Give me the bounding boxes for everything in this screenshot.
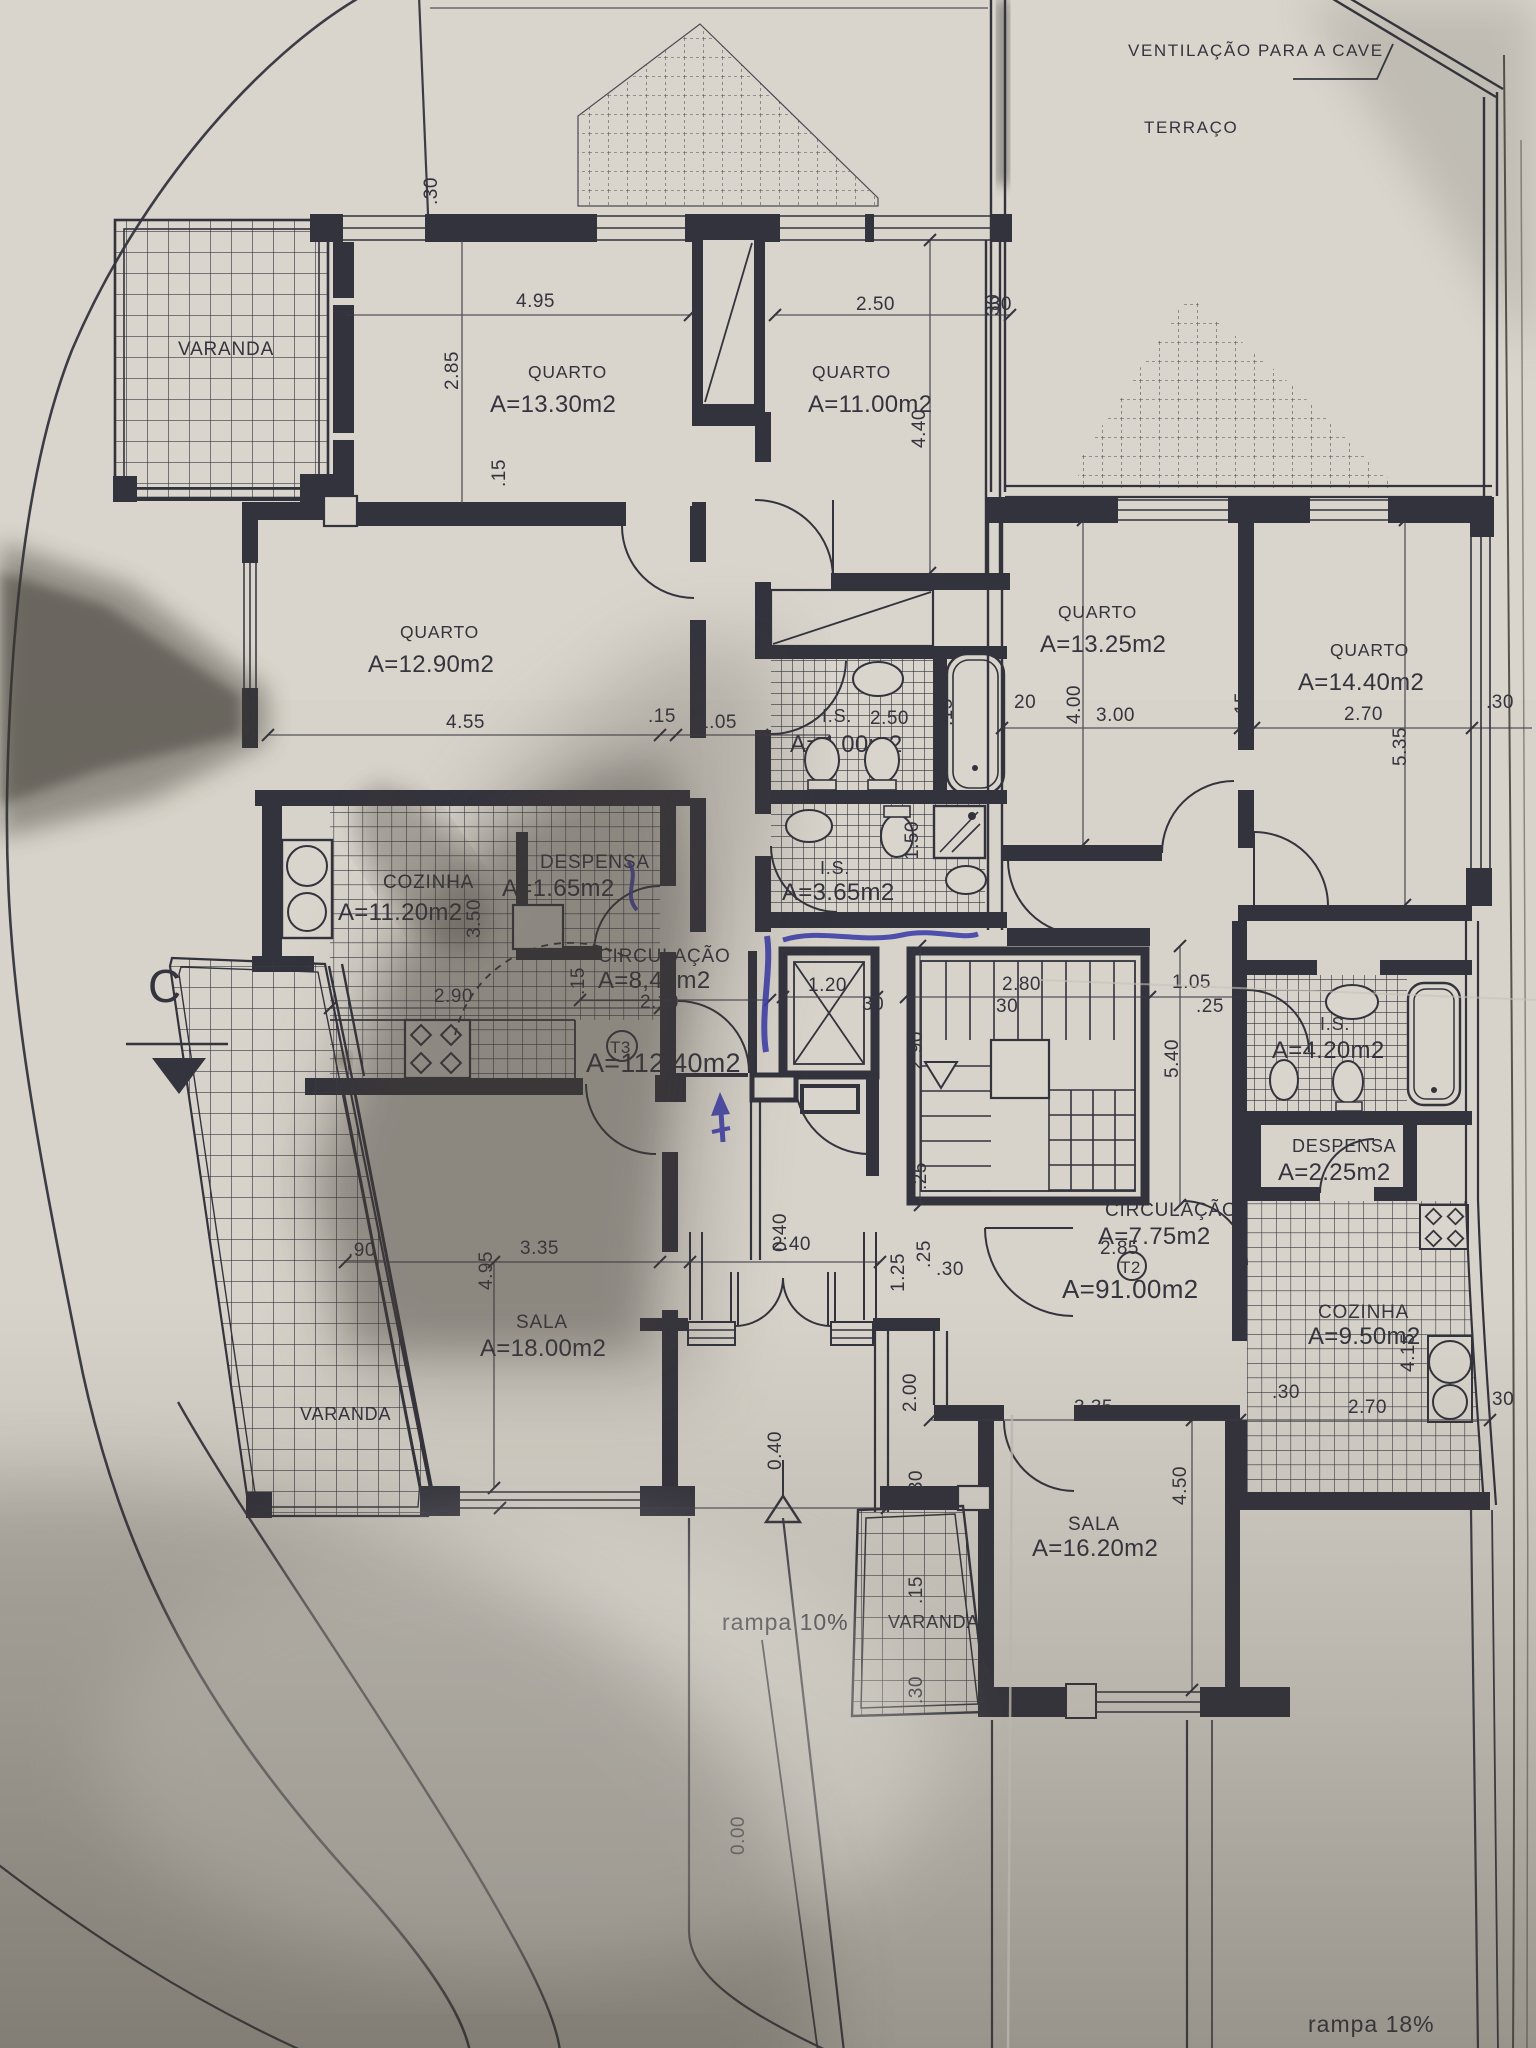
svg-text:1.25: 1.25 [888, 1253, 909, 1292]
svg-text:1.20: 1.20 [808, 975, 847, 996]
svg-text:A=12.90m2: A=12.90m2 [368, 651, 494, 678]
svg-text:5.35: 5.35 [1390, 727, 1411, 766]
svg-text:QUARTO: QUARTO [1330, 640, 1409, 660]
svg-text:2.50: 2.50 [870, 708, 909, 729]
svg-text:C: C [148, 960, 183, 1012]
svg-text:5.40: 5.40 [1162, 1039, 1183, 1078]
svg-text:2.80: 2.80 [1002, 974, 1041, 995]
svg-text:2.85: 2.85 [1100, 1238, 1139, 1259]
svg-text:30: 30 [983, 294, 1004, 316]
svg-text:QUARTO: QUARTO [812, 362, 891, 382]
svg-text:1.05: 1.05 [1172, 972, 1211, 993]
svg-text:2.85: 2.85 [442, 351, 463, 390]
svg-text:A=91.00m2: A=91.00m2 [1062, 1274, 1198, 1304]
svg-text:DESPENSA: DESPENSA [1292, 1136, 1396, 1156]
svg-text:.30: .30 [1486, 692, 1514, 713]
svg-text:1.50: 1.50 [902, 821, 923, 860]
svg-text:.25: .25 [910, 1162, 931, 1190]
svg-text:QUARTO: QUARTO [400, 622, 479, 642]
svg-text:A=13.30m2: A=13.30m2 [490, 391, 616, 418]
svg-text:4.95: 4.95 [516, 291, 555, 312]
svg-text:.30: .30 [936, 1259, 964, 1280]
svg-text:.15: .15 [1232, 692, 1253, 720]
svg-text:TERRAÇO: TERRAÇO [1144, 118, 1238, 137]
svg-text:2.50: 2.50 [856, 294, 895, 315]
svg-text:.30: .30 [421, 177, 442, 205]
svg-text:4.55: 4.55 [446, 712, 485, 733]
svg-text:3.00: 3.00 [1096, 705, 1135, 726]
svg-text:.25: .25 [914, 1240, 935, 1268]
svg-text:.15: .15 [936, 698, 957, 726]
svg-text:20: 20 [1014, 692, 1036, 713]
svg-text:2.70: 2.70 [1344, 704, 1383, 725]
svg-text:.15: .15 [489, 459, 510, 487]
svg-text:QUARTO: QUARTO [528, 362, 607, 382]
svg-text:30: 30 [996, 996, 1018, 1017]
svg-text:2.40: 2.40 [772, 1234, 811, 1255]
svg-text:A=4.20m2: A=4.20m2 [1272, 1037, 1384, 1064]
svg-text:A=3.65m2: A=3.65m2 [782, 879, 894, 906]
svg-text:.25: .25 [1196, 996, 1224, 1017]
svg-text:A=13.25m2: A=13.25m2 [1040, 631, 1166, 658]
svg-text:30: 30 [862, 994, 884, 1015]
svg-text:I.S.: I.S. [820, 858, 850, 878]
svg-text:A=2.25m2: A=2.25m2 [1278, 1159, 1390, 1186]
svg-text:4.40: 4.40 [909, 409, 930, 448]
svg-text:VARANDA: VARANDA [178, 339, 274, 360]
svg-text:QUARTO: QUARTO [1058, 602, 1137, 622]
svg-text:2.90: 2.90 [906, 1031, 927, 1070]
svg-text:4.00: 4.00 [1064, 685, 1085, 724]
